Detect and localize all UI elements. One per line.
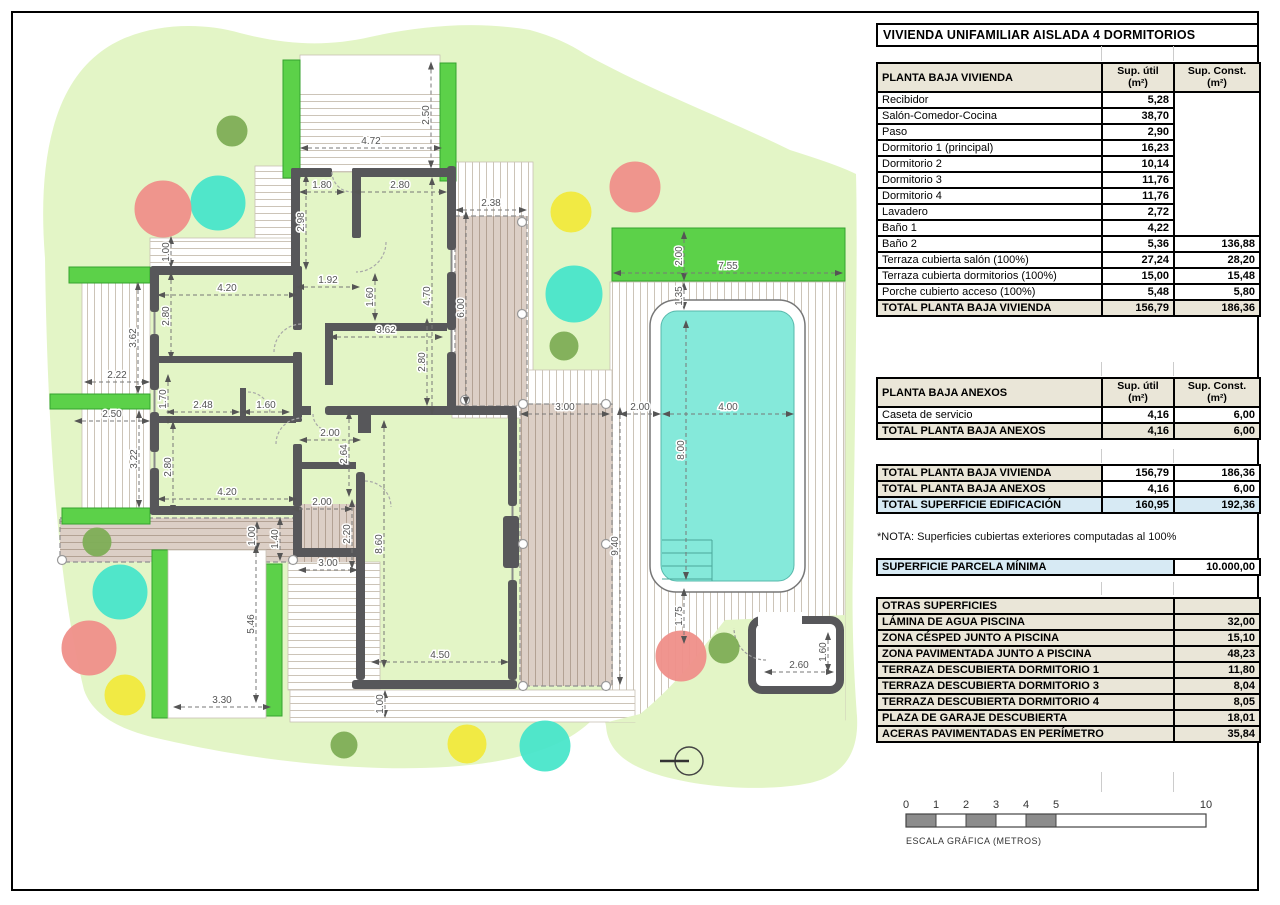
row-value bbox=[1174, 204, 1260, 220]
row-value: 6,00 bbox=[1174, 407, 1260, 423]
row-value: 2,90 bbox=[1102, 124, 1174, 140]
table-row: Dormitorio 210,14 bbox=[877, 156, 1260, 172]
table-row: Recibidor5,28 bbox=[877, 92, 1260, 108]
table-row: TERRAZA DESCUBIERTA DORMITORIO 111,80 bbox=[877, 662, 1260, 678]
col-header-sup-const: Sup. Const.(m²) bbox=[1174, 378, 1260, 407]
table-row: Baño 25,36136,88 bbox=[877, 236, 1260, 252]
row-value: 8,05 bbox=[1174, 694, 1260, 710]
col-header-sup-const: Sup. Const.(m²) bbox=[1174, 63, 1260, 92]
row-label: Baño 2 bbox=[877, 236, 1102, 252]
table-row: Lavadero2,72 bbox=[877, 204, 1260, 220]
table-row: Paso2,90 bbox=[877, 124, 1260, 140]
row-value bbox=[1174, 124, 1260, 140]
total-edificacion-row: TOTAL SUPERFICIE EDIFICACIÓN 160,95 192,… bbox=[877, 497, 1260, 513]
row-label: Dormitorio 1 (principal) bbox=[877, 140, 1102, 156]
row-value: 4,16 bbox=[1102, 481, 1174, 497]
row-value bbox=[1174, 188, 1260, 204]
table-row: Caseta de servicio4,166,00 bbox=[877, 407, 1260, 423]
table-row: TERRAZA DESCUBIERTA DORMITORIO 38,04 bbox=[877, 678, 1260, 694]
plan-sheet: 4.722.501.802.802.382.984.701.006.002.00… bbox=[0, 0, 1280, 905]
total-row: TOTAL PLANTA BAJA ANEXOS 4,16 6,00 bbox=[877, 423, 1260, 439]
row-label: TOTAL PLANTA BAJA VIVIENDA bbox=[877, 465, 1102, 481]
row-value: 32,00 bbox=[1174, 614, 1260, 630]
row-value: 27,24 bbox=[1102, 252, 1174, 268]
row-value: 35,84 bbox=[1174, 726, 1260, 742]
scale-tick-label: 3 bbox=[993, 799, 999, 811]
total-value: 4,16 bbox=[1102, 423, 1174, 439]
scale-tick-label: 10 bbox=[1200, 799, 1212, 811]
grid-gap bbox=[876, 449, 1259, 463]
vivienda-table: PLANTA BAJA VIVIENDA Sup. útil(m²) Sup. … bbox=[876, 62, 1261, 317]
table-row: Baño 14,22 bbox=[877, 220, 1260, 236]
row-value: 186,36 bbox=[1174, 465, 1260, 481]
scale-tick-label: 5 bbox=[1053, 799, 1059, 811]
table-row: Salón-Comedor-Cocina38,70 bbox=[877, 108, 1260, 124]
parcela-row: SUPERFICIE PARCELA MÍNIMA 10.000,00 bbox=[877, 559, 1260, 575]
parcela-label: SUPERFICIE PARCELA MÍNIMA bbox=[877, 559, 1174, 575]
row-value bbox=[1174, 220, 1260, 236]
grid-gap bbox=[876, 772, 1259, 792]
row-value: 15,10 bbox=[1174, 630, 1260, 646]
row-label: Baño 1 bbox=[877, 220, 1102, 236]
row-label: Recibidor bbox=[877, 92, 1102, 108]
table-row: TOTAL PLANTA BAJA VIVIENDA156,79186,36 bbox=[877, 465, 1260, 481]
otras-table: OTRAS SUPERFICIES LÁMINA DE AGUA PISCINA… bbox=[876, 597, 1261, 743]
row-value: 11,76 bbox=[1102, 188, 1174, 204]
row-label: Lavadero bbox=[877, 204, 1102, 220]
total-label: TOTAL PLANTA BAJA VIVIENDA bbox=[877, 300, 1102, 316]
row-value: 2,72 bbox=[1102, 204, 1174, 220]
table-row: Terraza cubierta salón (100%)27,2428,20 bbox=[877, 252, 1260, 268]
note-text: *NOTA: Superficies cubiertas exteriores … bbox=[876, 529, 1259, 545]
row-value bbox=[1174, 108, 1260, 124]
anexos-table: PLANTA BAJA ANEXOS Sup. útil(m²) Sup. Co… bbox=[876, 377, 1261, 440]
row-label: Salón-Comedor-Cocina bbox=[877, 108, 1102, 124]
row-label: Dormitorio 2 bbox=[877, 156, 1102, 172]
row-value: 38,70 bbox=[1102, 108, 1174, 124]
total-value: 6,00 bbox=[1174, 423, 1260, 439]
table-row: Dormitorio 411,76 bbox=[877, 188, 1260, 204]
row-label: PLAZA DE GARAJE DESCUBIERTA bbox=[877, 710, 1174, 726]
table-row: PLAZA DE GARAJE DESCUBIERTA18,01 bbox=[877, 710, 1260, 726]
col-header-sup-util: Sup. útil(m²) bbox=[1102, 378, 1174, 407]
row-value: 4,16 bbox=[1102, 407, 1174, 423]
row-value: 11,76 bbox=[1102, 172, 1174, 188]
total-label: TOTAL PLANTA BAJA ANEXOS bbox=[877, 423, 1102, 439]
table-header-row: PLANTA BAJA VIVIENDA Sup. útil(m²) Sup. … bbox=[877, 63, 1260, 92]
table-row: TERRAZA DESCUBIERTA DORMITORIO 48,05 bbox=[877, 694, 1260, 710]
table-header-title: PLANTA BAJA ANEXOS bbox=[877, 378, 1102, 407]
scale-bar: 01234510ESCALA GRÁFICA (METROS) bbox=[896, 794, 1236, 852]
row-value: 28,20 bbox=[1174, 252, 1260, 268]
total-value: 160,95 bbox=[1102, 497, 1174, 513]
row-value bbox=[1174, 92, 1260, 108]
table-header-row: PLANTA BAJA ANEXOS Sup. útil(m²) Sup. Co… bbox=[877, 378, 1260, 407]
scale-tick-label: 1 bbox=[933, 799, 939, 811]
table-row: Porche cubierto acceso (100%)5,485,80 bbox=[877, 284, 1260, 300]
row-value bbox=[1174, 172, 1260, 188]
table-row: Dormitorio 1 (principal)16,23 bbox=[877, 140, 1260, 156]
table-row: Dormitorio 311,76 bbox=[877, 172, 1260, 188]
row-value: 136,88 bbox=[1174, 236, 1260, 252]
resumen-table: TOTAL PLANTA BAJA VIVIENDA156,79186,36TO… bbox=[876, 464, 1261, 514]
table-row: LÁMINA DE AGUA PISCINA32,00 bbox=[877, 614, 1260, 630]
scale-caption: ESCALA GRÁFICA (METROS) bbox=[906, 836, 1042, 846]
row-label: ZONA CÉSPED JUNTO A PISCINA bbox=[877, 630, 1174, 646]
grid-gap bbox=[876, 362, 1259, 376]
parcela-value: 10.000,00 bbox=[1174, 559, 1260, 575]
row-label: Terraza cubierta dormitorios (100%) bbox=[877, 268, 1102, 284]
row-value: 10,14 bbox=[1102, 156, 1174, 172]
row-label: TERRAZA DESCUBIERTA DORMITORIO 4 bbox=[877, 694, 1174, 710]
row-label: LÁMINA DE AGUA PISCINA bbox=[877, 614, 1174, 630]
col-header-sup-util: Sup. útil(m²) bbox=[1102, 63, 1174, 92]
total-value: 192,36 bbox=[1174, 497, 1260, 513]
row-label: TOTAL PLANTA BAJA ANEXOS bbox=[877, 481, 1102, 497]
table-row: ACERAS PAVIMENTADAS EN PERÍMETRO35,84 bbox=[877, 726, 1260, 742]
total-row: TOTAL PLANTA BAJA VIVIENDA 156,79 186,36 bbox=[877, 300, 1260, 316]
row-label: Terraza cubierta salón (100%) bbox=[877, 252, 1102, 268]
total-value: 156,79 bbox=[1102, 300, 1174, 316]
row-value bbox=[1174, 140, 1260, 156]
row-value: 156,79 bbox=[1102, 465, 1174, 481]
grid-gap bbox=[876, 46, 1259, 61]
row-label: Dormitorio 3 bbox=[877, 172, 1102, 188]
row-label: Dormitorio 4 bbox=[877, 188, 1102, 204]
table-header-row: OTRAS SUPERFICIES bbox=[877, 598, 1260, 614]
scale-tick-label: 4 bbox=[1023, 799, 1029, 811]
row-value bbox=[1174, 156, 1260, 172]
grid-gap bbox=[876, 582, 1259, 595]
row-value: 18,01 bbox=[1174, 710, 1260, 726]
row-label: ACERAS PAVIMENTADAS EN PERÍMETRO bbox=[877, 726, 1174, 742]
row-value: 5,28 bbox=[1102, 92, 1174, 108]
parcela-table: SUPERFICIE PARCELA MÍNIMA 10.000,00 bbox=[876, 558, 1261, 576]
row-value: 5,36 bbox=[1102, 236, 1174, 252]
scale-tick-label: 2 bbox=[963, 799, 969, 811]
row-label: Paso bbox=[877, 124, 1102, 140]
row-label: Porche cubierto acceso (100%) bbox=[877, 284, 1102, 300]
row-value: 5,48 bbox=[1102, 284, 1174, 300]
table-row: ZONA PAVIMENTADA JUNTO A PISCINA48,23 bbox=[877, 646, 1260, 662]
table-row: Terraza cubierta dormitorios (100%)15,00… bbox=[877, 268, 1260, 284]
row-value: 11,80 bbox=[1174, 662, 1260, 678]
row-label: TERRAZA DESCUBIERTA DORMITORIO 3 bbox=[877, 678, 1174, 694]
row-label: ZONA PAVIMENTADA JUNTO A PISCINA bbox=[877, 646, 1174, 662]
row-value: 15,00 bbox=[1102, 268, 1174, 284]
table-header-title: OTRAS SUPERFICIES bbox=[877, 598, 1174, 614]
total-label: TOTAL SUPERFICIE EDIFICACIÓN bbox=[877, 497, 1102, 513]
total-value: 186,36 bbox=[1174, 300, 1260, 316]
sheet-title: VIVIENDA UNIFAMILIAR AISLADA 4 DORMITORI… bbox=[876, 23, 1259, 47]
table-row: ZONA CÉSPED JUNTO A PISCINA15,10 bbox=[877, 630, 1260, 646]
row-label: Caseta de servicio bbox=[877, 407, 1102, 423]
row-value: 5,80 bbox=[1174, 284, 1260, 300]
row-value: 6,00 bbox=[1174, 481, 1260, 497]
row-value: 4,22 bbox=[1102, 220, 1174, 236]
table-header-title: PLANTA BAJA VIVIENDA bbox=[877, 63, 1102, 92]
scale-tick-label: 0 bbox=[903, 799, 909, 811]
row-value: 48,23 bbox=[1174, 646, 1260, 662]
row-value: 15,48 bbox=[1174, 268, 1260, 284]
table-row: TOTAL PLANTA BAJA ANEXOS4,166,00 bbox=[877, 481, 1260, 497]
row-value: 8,04 bbox=[1174, 678, 1260, 694]
table-header-blank bbox=[1174, 598, 1260, 614]
row-label: TERRAZA DESCUBIERTA DORMITORIO 1 bbox=[877, 662, 1174, 678]
row-value: 16,23 bbox=[1102, 140, 1174, 156]
